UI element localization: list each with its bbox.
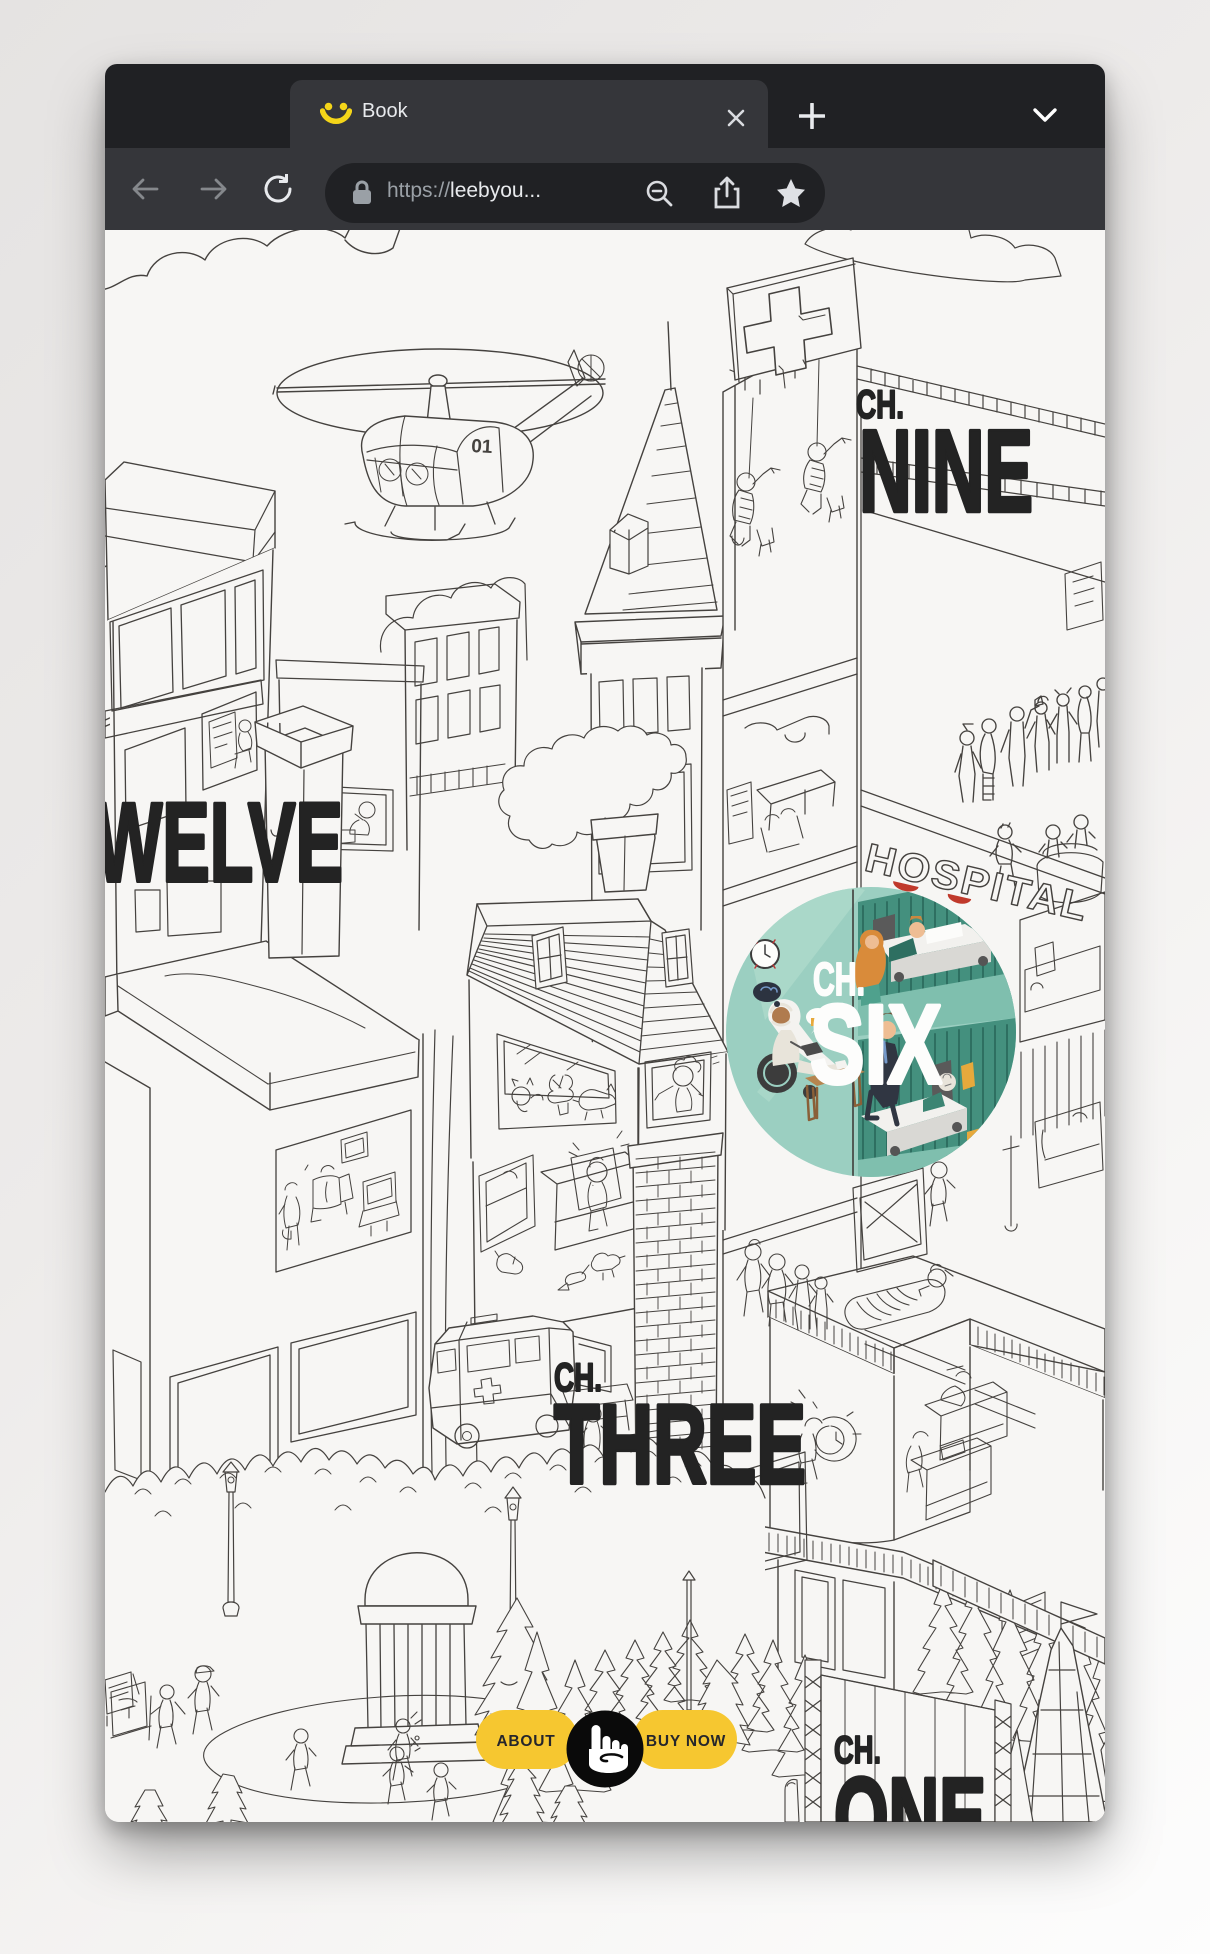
svg-text:THREE: THREE xyxy=(554,1382,806,1507)
svg-text:NINE: NINE xyxy=(859,406,1033,536)
svg-text:ONE: ONE xyxy=(834,1756,986,1822)
svg-text:01: 01 xyxy=(471,436,494,458)
svg-text:ABOUT: ABOUT xyxy=(496,1733,555,1750)
svg-text:BUY NOW: BUY NOW xyxy=(646,1733,726,1750)
svg-text:SIX: SIX xyxy=(810,982,942,1107)
svg-text:WELVE: WELVE xyxy=(105,780,343,905)
